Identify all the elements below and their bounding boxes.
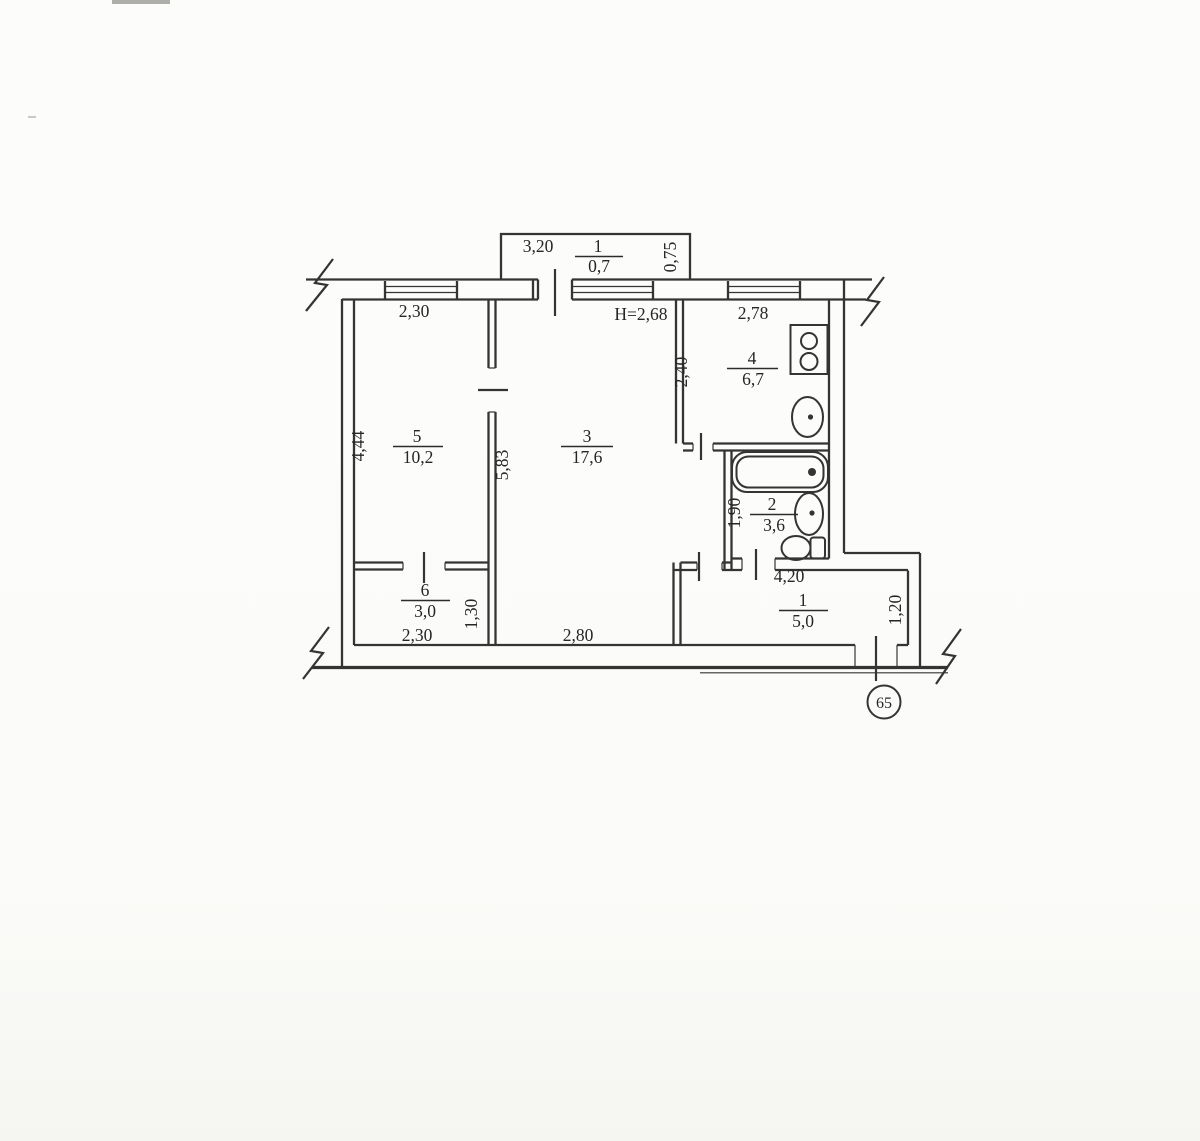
- dim-living-width: 2,80: [563, 625, 594, 645]
- bedroom-area-label: 10,2: [403, 447, 434, 467]
- hallway-number-label: 1: [799, 590, 808, 610]
- kitchen-fixtures: [791, 325, 828, 437]
- dim-closet-width: 2,30: [402, 625, 433, 645]
- bathtub-icon: [732, 452, 828, 492]
- dim-bedroom-window-wall: 2,30: [399, 301, 430, 321]
- apartment-number-text: 65: [876, 695, 892, 712]
- scanned-floor-plan-page: 1 0,7 5 10,2 3 17,6 4 6,7 2 3,6 6 3,0 1: [0, 0, 1200, 1141]
- dim-kitchen-window-wall: 2,78: [738, 303, 769, 323]
- bathroom-number-label: 2: [768, 494, 777, 514]
- dim-closet-depth: 1,30: [461, 598, 481, 629]
- balcony-area-label: 0,7: [588, 256, 610, 276]
- living-area-label: 17,6: [572, 447, 603, 467]
- dimension-labels: 3,20 0,75 2,30 H=2,68 2,78 4,44 5,83 2,4…: [348, 236, 905, 645]
- break-top-right: [861, 277, 884, 326]
- hallway-area-label: 5,0: [792, 611, 814, 631]
- bedroom-number-label: 5: [413, 426, 422, 446]
- kitchen-number-label: 4: [748, 348, 757, 368]
- apartment-number-badge: 65: [868, 686, 901, 719]
- dim-entry-depth: 1,20: [885, 594, 905, 625]
- dim-bedroom-depth: 4,44: [348, 430, 368, 461]
- floor-plan-drawing: 1 0,7 5 10,2 3 17,6 4 6,7 2 3,6 6 3,0 1: [0, 0, 1200, 1141]
- window-kitchen: [728, 281, 800, 299]
- toilet-icon: [782, 536, 826, 560]
- break-top-left: [306, 259, 333, 311]
- kitchen-area-label: 6,7: [742, 369, 764, 389]
- dim-living-partition: 5,83: [492, 449, 512, 480]
- balcony-number-label: 1: [594, 236, 603, 256]
- living-number-label: 3: [583, 426, 592, 446]
- closet-number-label: 6: [421, 580, 430, 600]
- dim-kitchen-depth: 2,40: [671, 356, 691, 387]
- dim-balcony-depth: 0,75: [660, 241, 680, 272]
- kitchen-sink-icon: [792, 397, 823, 437]
- bathroom-fixtures: [732, 452, 828, 560]
- window-bedroom: [385, 281, 457, 299]
- break-bottom-right: [936, 629, 961, 684]
- bathroom-area-label: 3,6: [763, 515, 785, 535]
- ceiling-height-label: H=2,68: [614, 304, 667, 324]
- dim-bathroom-depth: 1,90: [724, 497, 744, 528]
- washbasin-icon: [795, 493, 823, 535]
- dim-hallway-width: 4,20: [774, 566, 805, 586]
- exterior-walls: [306, 280, 948, 673]
- interior-partitions: [354, 299, 908, 645]
- dim-balcony-width: 3,20: [523, 236, 554, 256]
- stove-icon: [791, 325, 828, 374]
- break-bottom-left: [303, 627, 329, 679]
- closet-area-label: 3,0: [414, 601, 436, 621]
- room-labels: 1 0,7 5 10,2 3 17,6 4 6,7 2 3,6 6 3,0 1: [393, 236, 828, 631]
